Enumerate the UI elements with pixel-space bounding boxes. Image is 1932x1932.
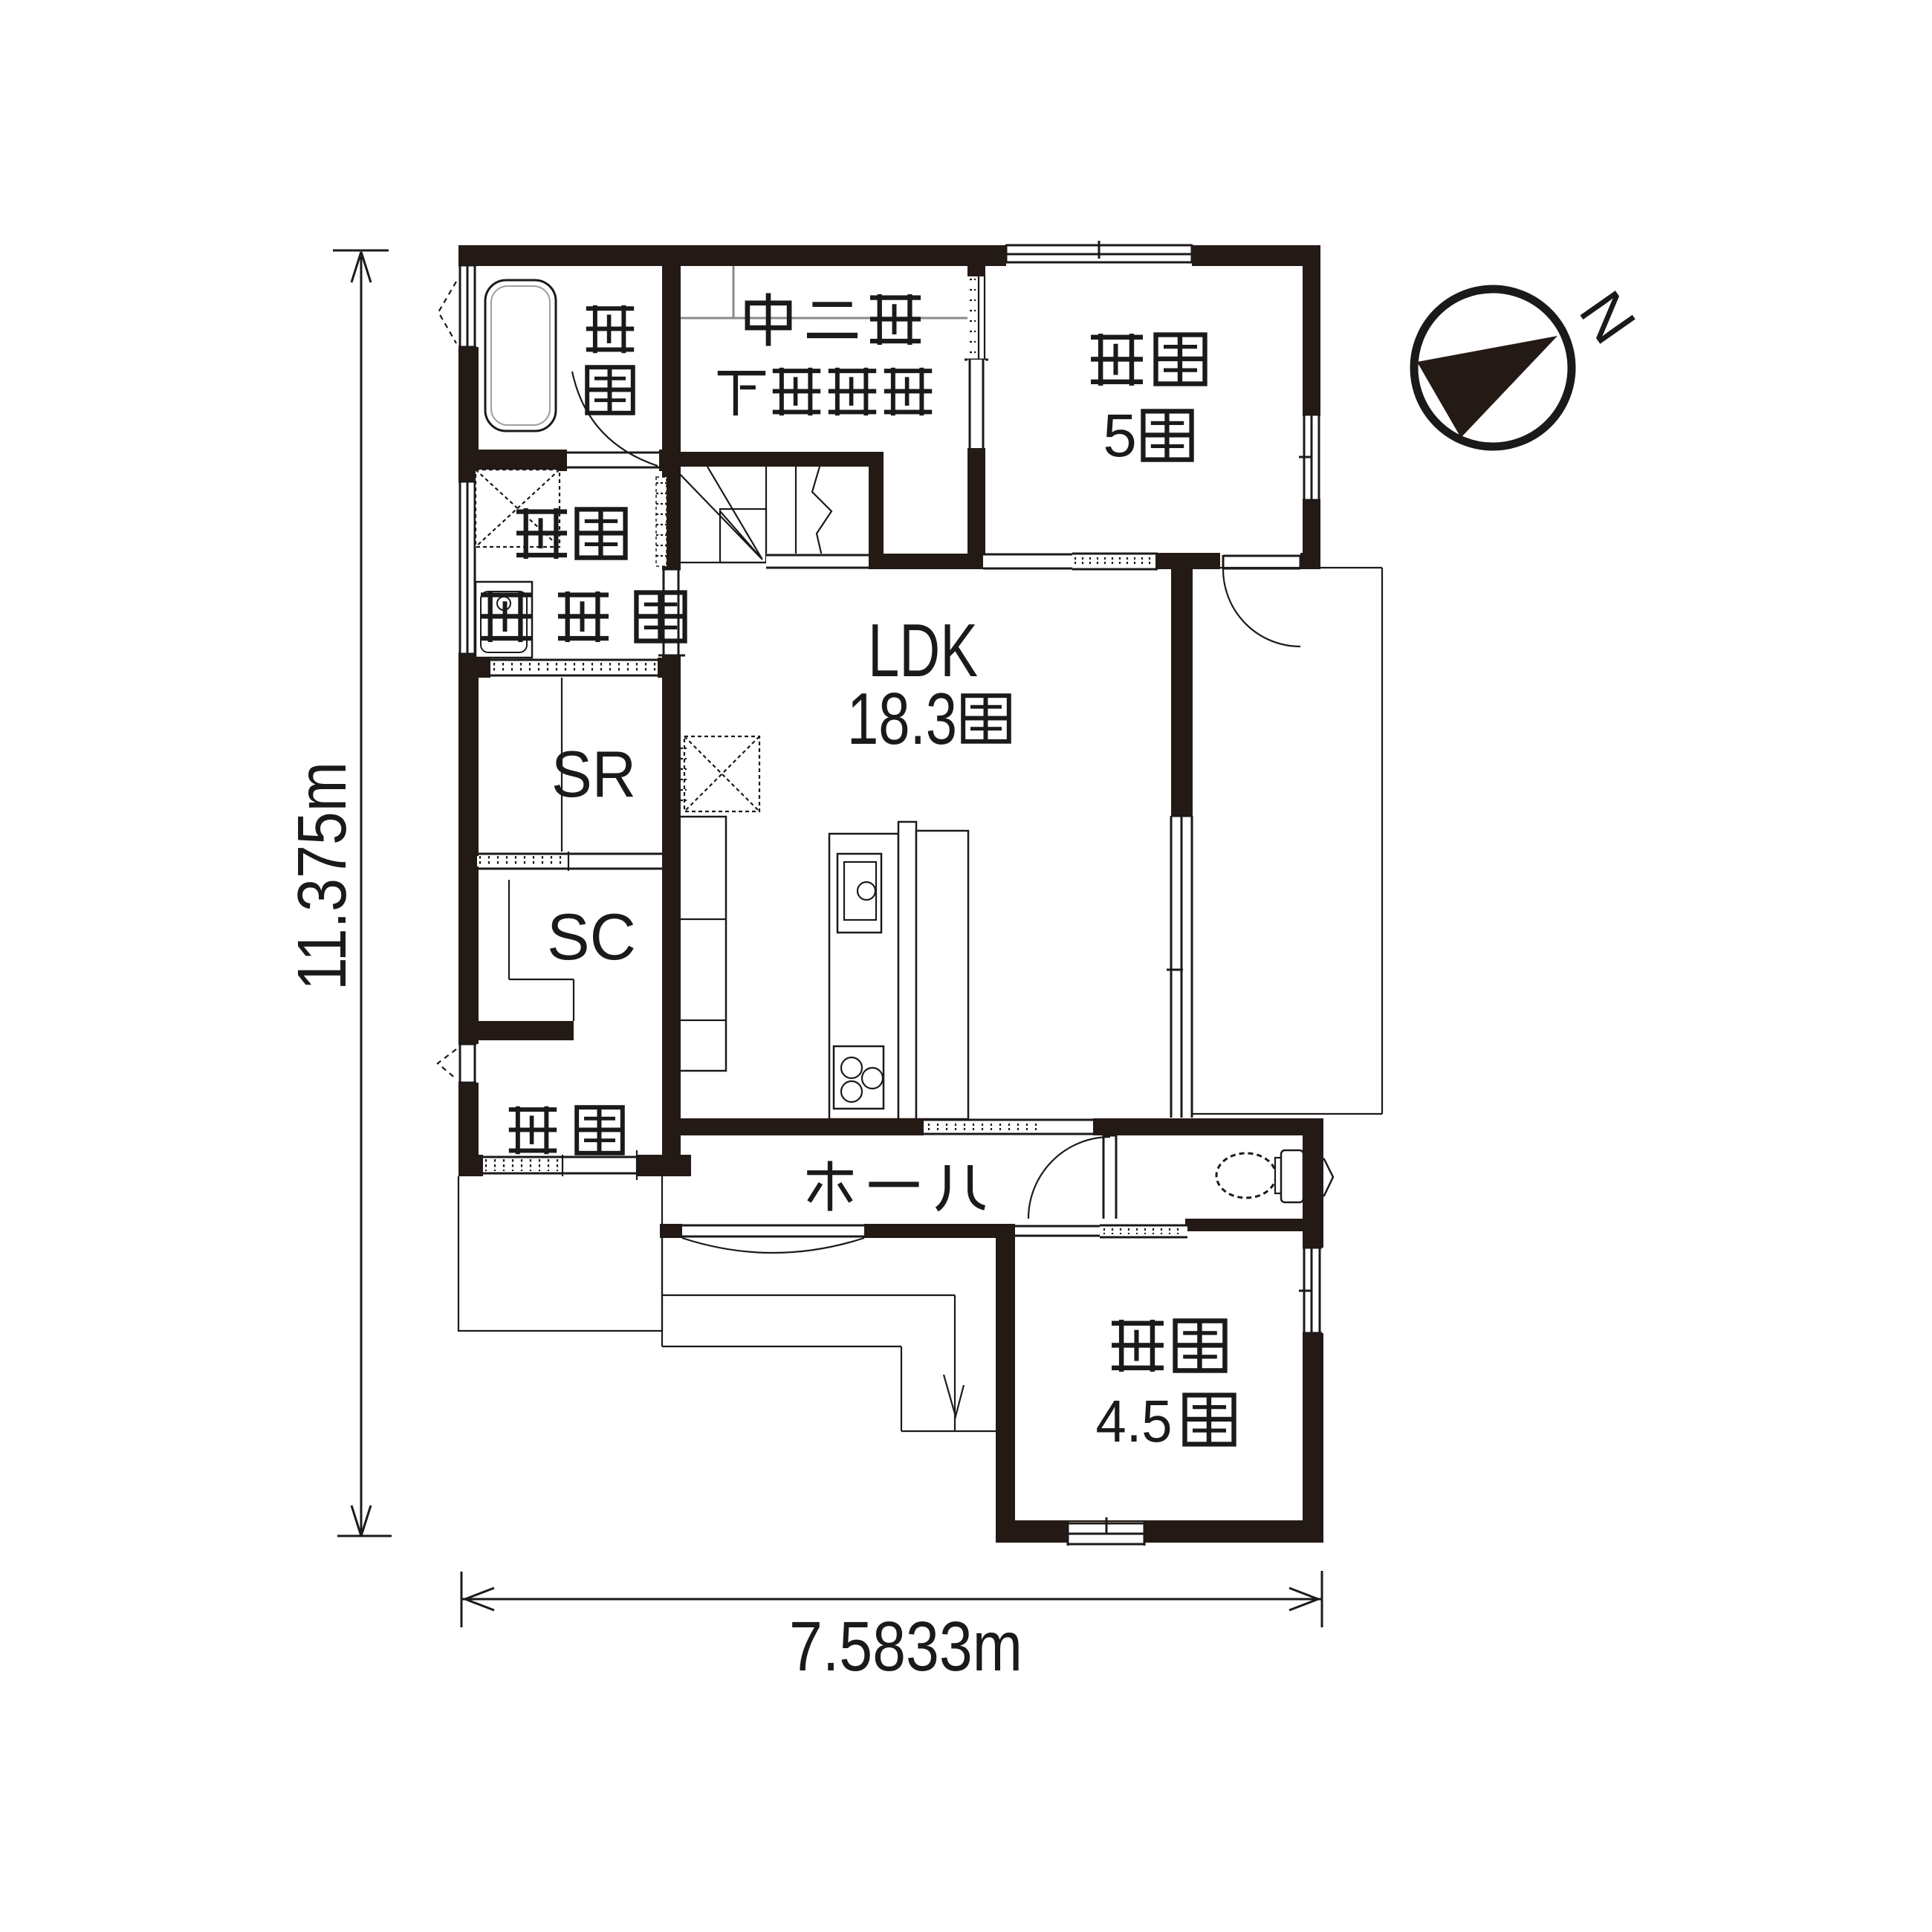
svg-text:7.5833m: 7.5833m [789, 1607, 1022, 1686]
svg-text:5: 5 [1103, 402, 1137, 470]
svg-text:4.5: 4.5 [1096, 1388, 1173, 1454]
svg-text:18.3: 18.3 [847, 678, 957, 759]
svg-text:SR: SR [551, 737, 636, 811]
svg-text:11.375m: 11.375m [283, 762, 360, 991]
svg-text:SC: SC [547, 900, 636, 973]
